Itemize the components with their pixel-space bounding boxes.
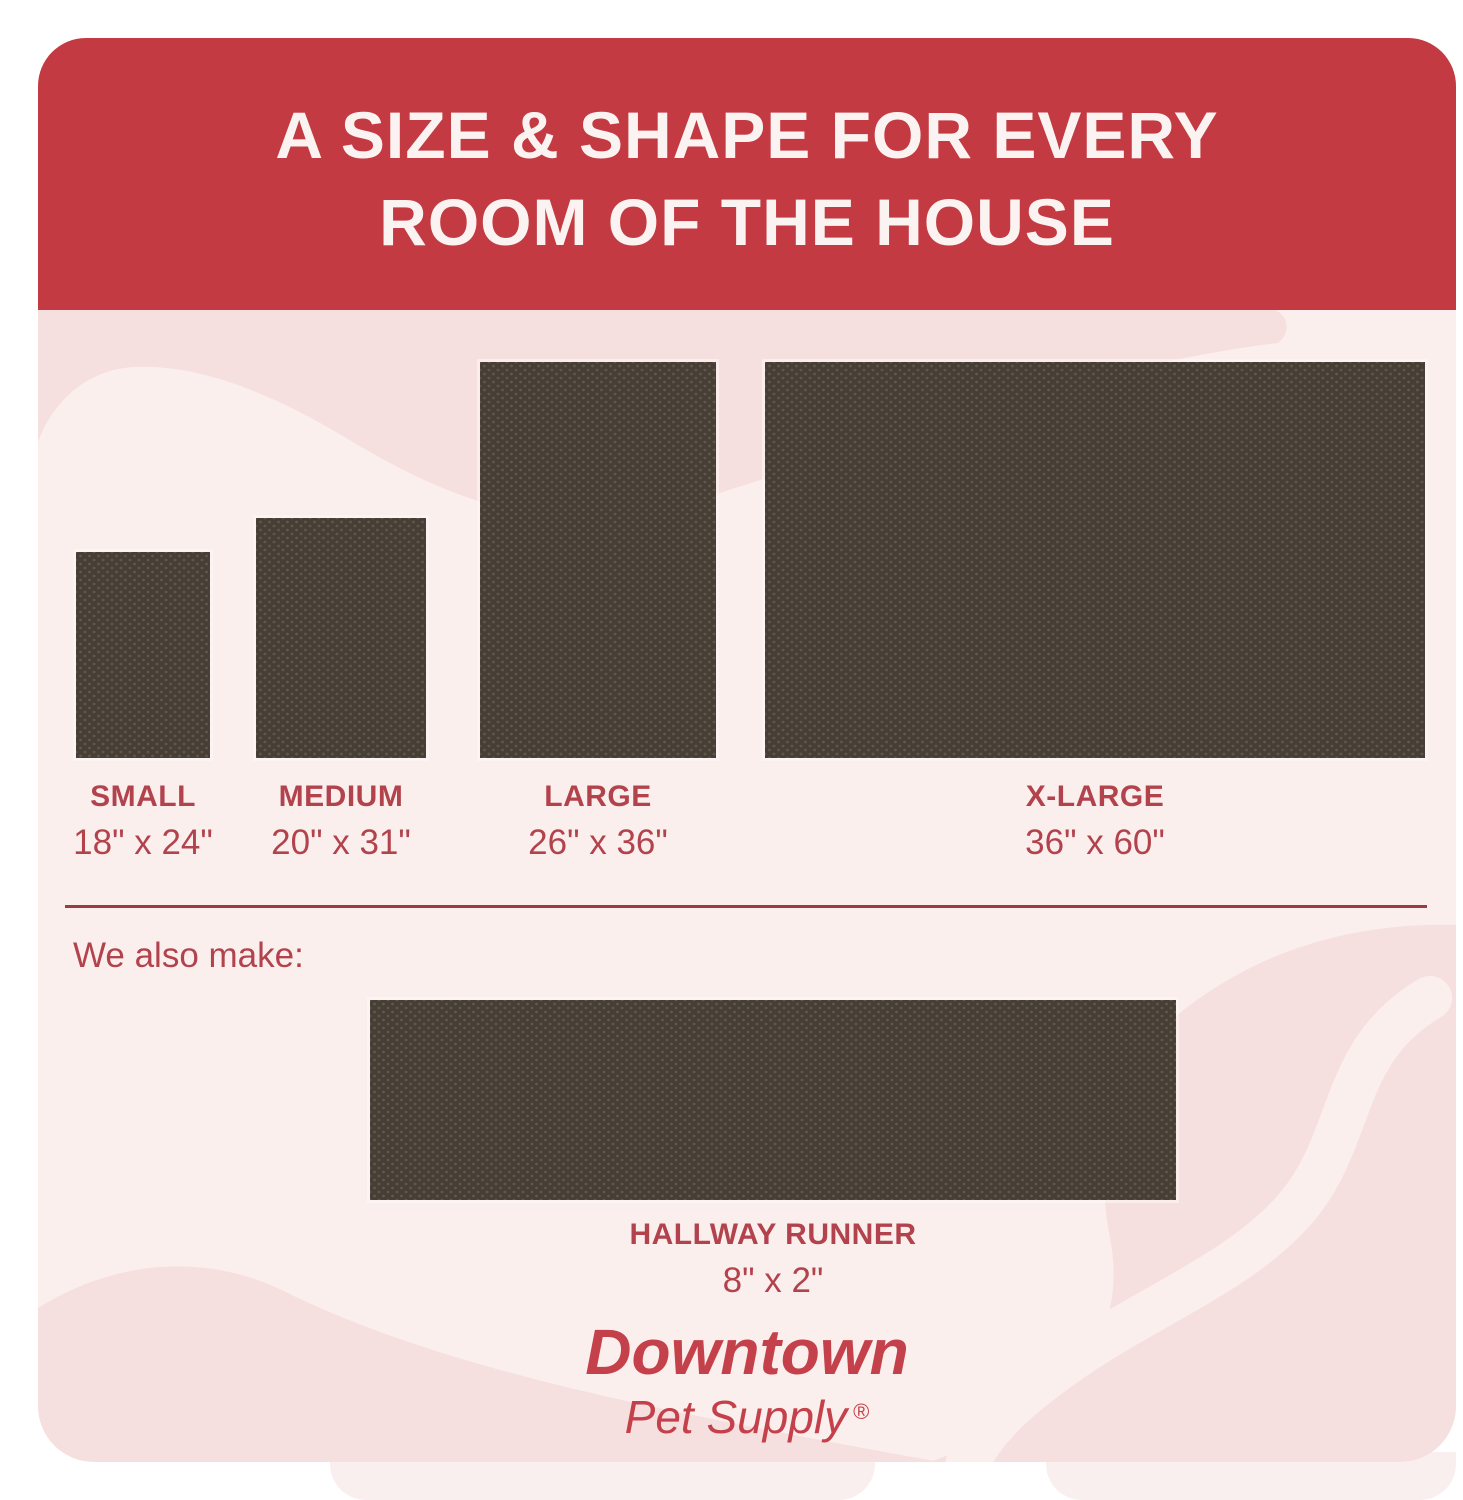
rug-swatch-medium xyxy=(256,518,426,758)
brand-tagline-text: Pet Supply xyxy=(625,1391,847,1443)
size-name: LARGE xyxy=(498,780,698,814)
size-name: MEDIUM xyxy=(241,780,441,814)
size-name: X-LARGE xyxy=(995,780,1195,814)
brand-logo: Downtown Pet Supply® xyxy=(38,1320,1456,1440)
rug-swatch-large xyxy=(480,362,716,758)
brand-tagline: Pet Supply® xyxy=(38,1394,1456,1440)
page-title-line-2: ROOM OF THE HOUSE xyxy=(38,179,1456,266)
size-label-large: LARGE 26" x 36" xyxy=(498,780,698,863)
size-name: SMALL xyxy=(43,780,243,814)
size-dimensions: 20" x 31" xyxy=(241,823,441,863)
brand-name: Downtown xyxy=(38,1320,1456,1384)
section-divider xyxy=(65,905,1427,908)
size-dimensions: 36" x 60" xyxy=(995,823,1195,863)
size-label-hallway-runner: HALLWAY RUNNER 8" x 2" xyxy=(573,1218,973,1301)
size-dimensions: 8" x 2" xyxy=(573,1261,973,1301)
rug-swatch-xlarge xyxy=(765,362,1425,758)
size-label-medium: MEDIUM 20" x 31" xyxy=(241,780,441,863)
registered-trademark-mark: ® xyxy=(853,1399,869,1424)
pale-decoration-right xyxy=(1046,1452,1456,1500)
page-title-line-1: A SIZE & SHAPE FOR EVERY xyxy=(38,92,1456,179)
size-dimensions: 18" x 24" xyxy=(43,823,243,863)
header-banner: A SIZE & SHAPE FOR EVERY ROOM OF THE HOU… xyxy=(38,38,1456,310)
also-make-label: We also make: xyxy=(73,936,304,976)
rug-swatch-small xyxy=(76,552,210,758)
size-label-small: SMALL 18" x 24" xyxy=(43,780,243,863)
size-name: HALLWAY RUNNER xyxy=(573,1218,973,1252)
rug-swatch-hallway-runner xyxy=(370,1000,1176,1200)
infographic-canvas: A SIZE & SHAPE FOR EVERY ROOM OF THE HOU… xyxy=(0,0,1463,1500)
size-dimensions: 26" x 36" xyxy=(498,823,698,863)
pale-decoration-left xyxy=(330,1452,875,1500)
size-label-xlarge: X-LARGE 36" x 60" xyxy=(995,780,1195,863)
content-panel: SMALL 18" x 24" MEDIUM 20" x 31" LARGE 2… xyxy=(38,310,1456,1462)
